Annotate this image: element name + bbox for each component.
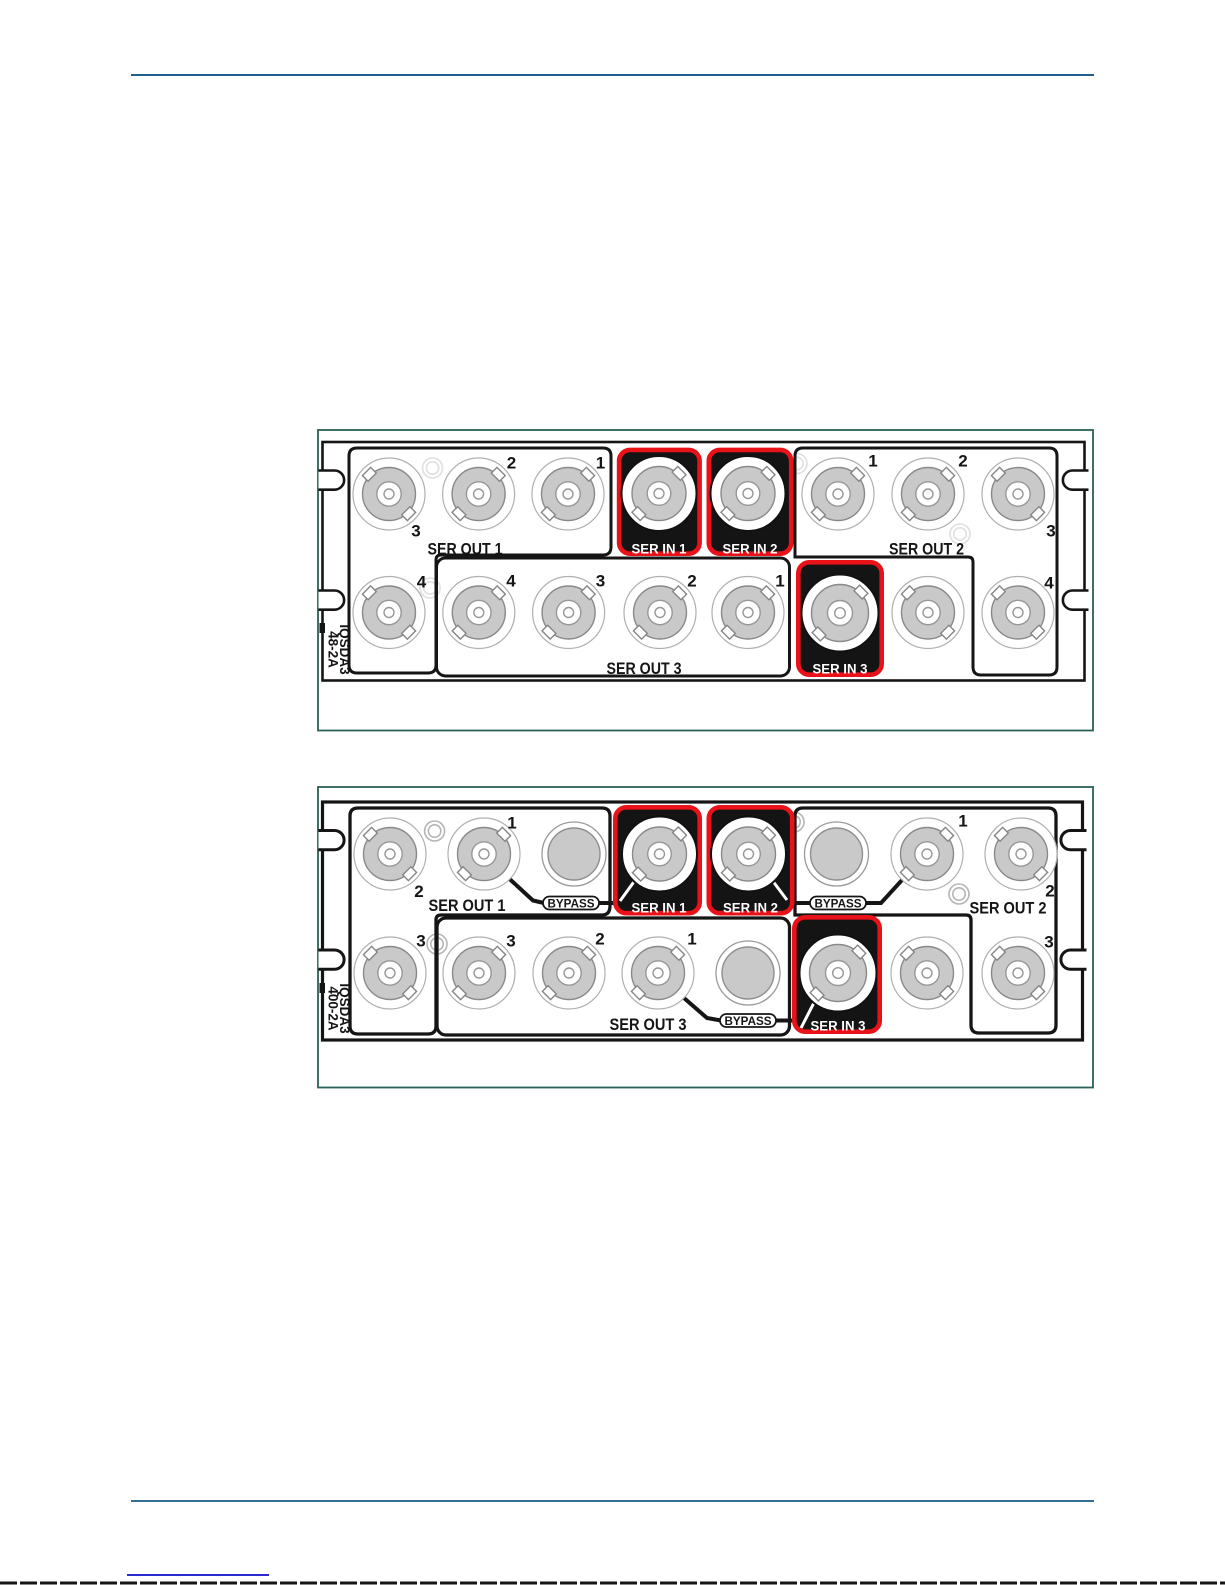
svg-text:2: 2 xyxy=(958,452,967,471)
svg-text:4: 4 xyxy=(506,572,516,591)
svg-text:SER IN 3: SER IN 3 xyxy=(811,1019,866,1034)
svg-text:SER OUT 2: SER OUT 2 xyxy=(889,540,964,559)
svg-text:3: 3 xyxy=(1044,933,1053,952)
svg-text:3: 3 xyxy=(411,522,420,541)
svg-text:3: 3 xyxy=(1046,522,1055,541)
svg-text:SER OUT 1: SER OUT 1 xyxy=(429,896,506,915)
svg-text:SER OUT 3: SER OUT 3 xyxy=(610,1015,687,1034)
svg-text:BYPASS: BYPASS xyxy=(725,1014,772,1028)
svg-text:SER IN 2: SER IN 2 xyxy=(723,901,778,916)
svg-text:1: 1 xyxy=(868,452,877,471)
svg-text:2: 2 xyxy=(687,572,696,591)
svg-text:SER OUT 2: SER OUT 2 xyxy=(970,899,1047,918)
svg-text:BYPASS: BYPASS xyxy=(815,897,862,911)
svg-text:1: 1 xyxy=(596,454,605,473)
svg-text:2: 2 xyxy=(595,930,604,949)
svg-text:4: 4 xyxy=(1044,574,1054,593)
svg-text:3: 3 xyxy=(416,932,425,951)
svg-text:1: 1 xyxy=(507,814,516,833)
svg-text:3: 3 xyxy=(596,572,605,591)
svg-text:1: 1 xyxy=(687,930,696,949)
svg-text:SER IN 1: SER IN 1 xyxy=(632,901,687,916)
svg-text:BYPASS: BYPASS xyxy=(548,897,595,911)
svg-text:3: 3 xyxy=(506,932,515,951)
svg-text:1: 1 xyxy=(958,812,967,831)
svg-text:4: 4 xyxy=(417,573,427,592)
svg-text:IQSDA348-2A: IQSDA348-2A xyxy=(326,624,353,675)
svg-text:SER IN 3: SER IN 3 xyxy=(813,662,868,677)
svg-text:1: 1 xyxy=(775,572,784,591)
svg-text:2: 2 xyxy=(507,454,516,473)
svg-text:SER IN 1: SER IN 1 xyxy=(632,542,687,557)
svg-text:2: 2 xyxy=(1045,882,1054,901)
svg-text:SER OUT 3: SER OUT 3 xyxy=(607,659,682,678)
svg-text:SER OUT 1: SER OUT 1 xyxy=(428,540,503,559)
svg-text:IQSDA3400-2A: IQSDA3400-2A xyxy=(326,983,353,1034)
svg-text:2: 2 xyxy=(414,882,423,901)
svg-text:SER IN 2: SER IN 2 xyxy=(723,542,778,557)
